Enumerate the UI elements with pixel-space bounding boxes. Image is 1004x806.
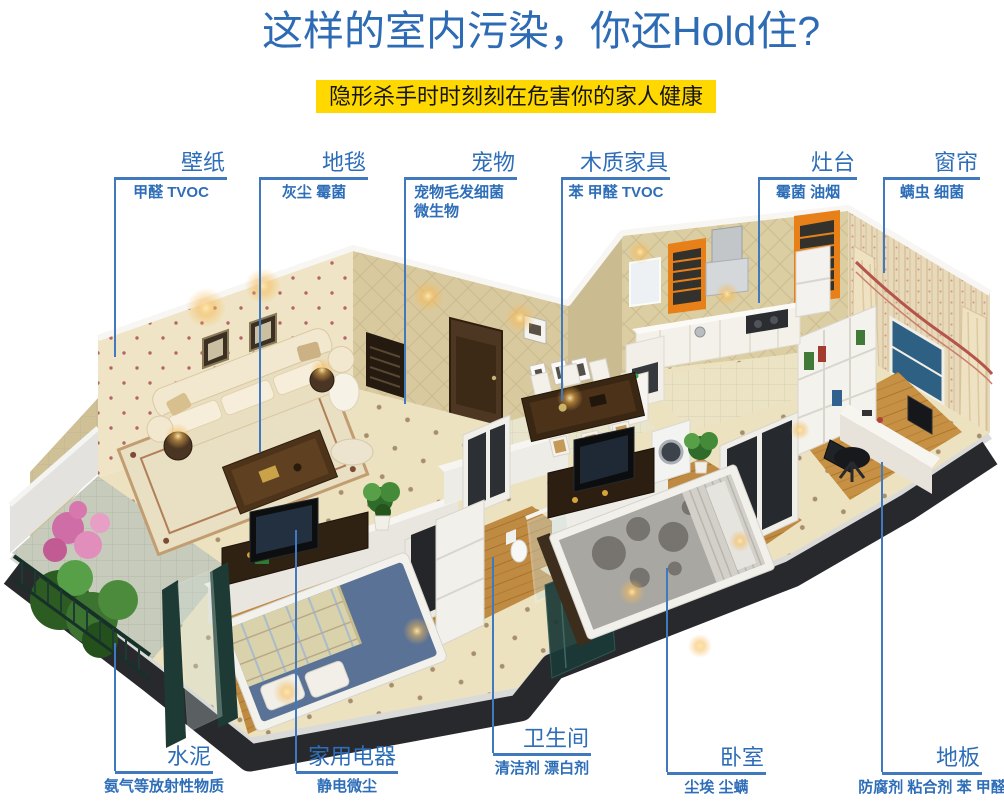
callout-floor-pollutants: 防腐剂 粘合剂 苯 甲醛: [882, 775, 982, 797]
subtitle-banner: 隐形杀手时时刻刻在危害你的家人健康: [316, 80, 716, 113]
callout-pets: 宠物 宠物毛发细菌 微生物: [405, 149, 517, 221]
callout-floor-label: 地板: [882, 744, 982, 775]
page-title: 这样的室内污染，你还Hold住?: [262, 6, 820, 56]
callout-curtains-label: 窗帘: [884, 149, 980, 180]
callout-bathroom: 卫生间 清洁剂 漂白剂: [493, 725, 591, 778]
callout-appliances-pollutants: 静电微尘: [296, 774, 398, 796]
callout-stove: 灶台 霉菌 油烟: [759, 149, 857, 202]
callout-bedroom: 卧室 尘埃 尘螨: [667, 744, 766, 797]
callout-bathroom-label: 卫生间: [493, 725, 591, 756]
poster: 这样的室内污染，你还Hold住? 隐形杀手时时刻刻在危害你的家人健康: [0, 0, 1004, 806]
callout-cement-pollutants: 氨气等放射性物质: [115, 774, 213, 796]
callout-wallpaper: 壁纸 甲醛 TVOC: [115, 149, 227, 202]
callout-wood-furniture-pollutants: 苯 甲醛 TVOC: [562, 180, 670, 202]
callout-line-bathroom: [492, 557, 494, 753]
callout-appliances: 家用电器 静电微尘: [296, 743, 398, 796]
callout-curtains-pollutants: 螨虫 细菌: [884, 180, 980, 202]
callout-appliances-label: 家用电器: [296, 743, 398, 774]
callout-wallpaper-label: 壁纸: [115, 149, 227, 180]
callout-line-floor: [881, 462, 883, 772]
callout-carpet-pollutants: 灰尘 霉菌: [260, 180, 368, 202]
callout-line-carpet: [259, 177, 261, 452]
callout-bathroom-pollutants: 清洁剂 漂白剂: [493, 756, 591, 778]
callout-bedroom-pollutants: 尘埃 尘螨: [667, 775, 766, 797]
callout-wallpaper-pollutants: 甲醛 TVOC: [115, 180, 227, 202]
callout-cement: 水泥 氨气等放射性物质: [115, 743, 213, 796]
callout-line-bedroom: [666, 568, 668, 772]
callout-stove-pollutants: 霉菌 油烟: [759, 180, 857, 202]
callout-line-wallpaper: [114, 177, 116, 357]
callout-curtains: 窗帘 螨虫 细菌: [884, 149, 980, 202]
callout-stove-label: 灶台: [759, 149, 857, 180]
callout-line-wood-furniture: [561, 177, 563, 401]
callout-wood-furniture-label: 木质家具: [562, 149, 670, 180]
callout-line-appliances: [295, 530, 297, 771]
callout-carpet: 地毯 灰尘 霉菌: [260, 149, 368, 202]
callout-pets-label: 宠物: [405, 149, 517, 180]
house-illustration: [0, 0, 1004, 806]
callout-floor: 地板 防腐剂 粘合剂 苯 甲醛: [882, 744, 982, 797]
callout-pets-pollutants: 宠物毛发细菌 微生物: [405, 180, 517, 221]
callout-carpet-label: 地毯: [260, 149, 368, 180]
callout-bedroom-label: 卧室: [667, 744, 766, 775]
callout-cement-label: 水泥: [115, 743, 213, 774]
callout-wood-furniture: 木质家具 苯 甲醛 TVOC: [562, 149, 670, 202]
